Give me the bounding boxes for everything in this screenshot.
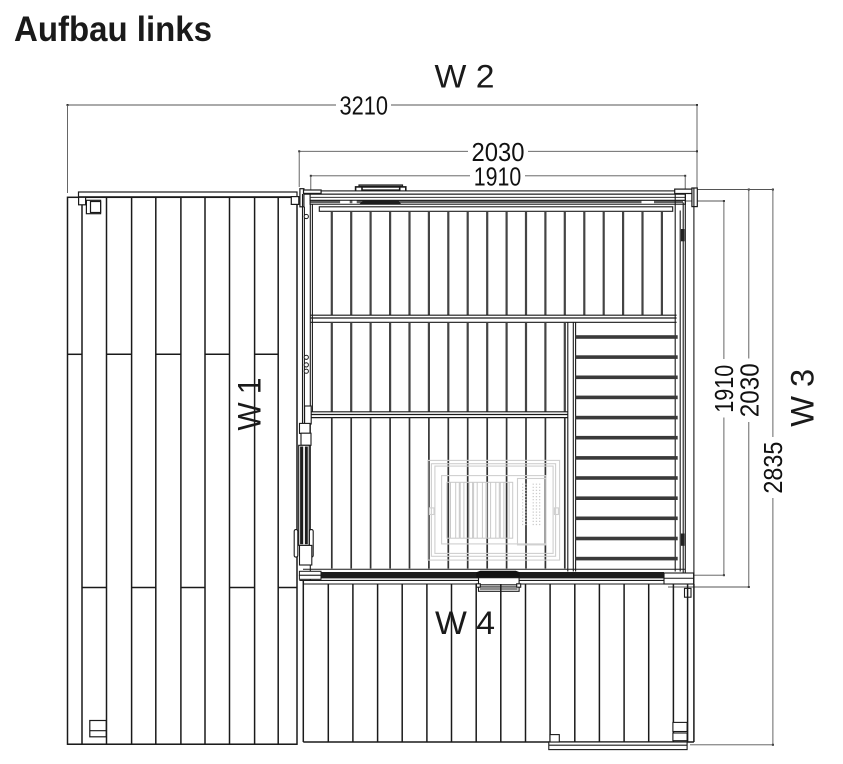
svg-text:W 1: W 1 [232, 378, 268, 431]
svg-text:2030: 2030 [734, 363, 764, 417]
svg-text:W 4: W 4 [435, 605, 495, 641]
svg-text:2835: 2835 [758, 442, 788, 494]
svg-text:1910: 1910 [474, 161, 522, 191]
svg-text:W 3: W 3 [785, 369, 821, 427]
svg-text:W 2: W 2 [435, 59, 495, 95]
svg-text:Aufbau links: Aufbau links [14, 10, 212, 49]
svg-text:3210: 3210 [340, 91, 389, 121]
